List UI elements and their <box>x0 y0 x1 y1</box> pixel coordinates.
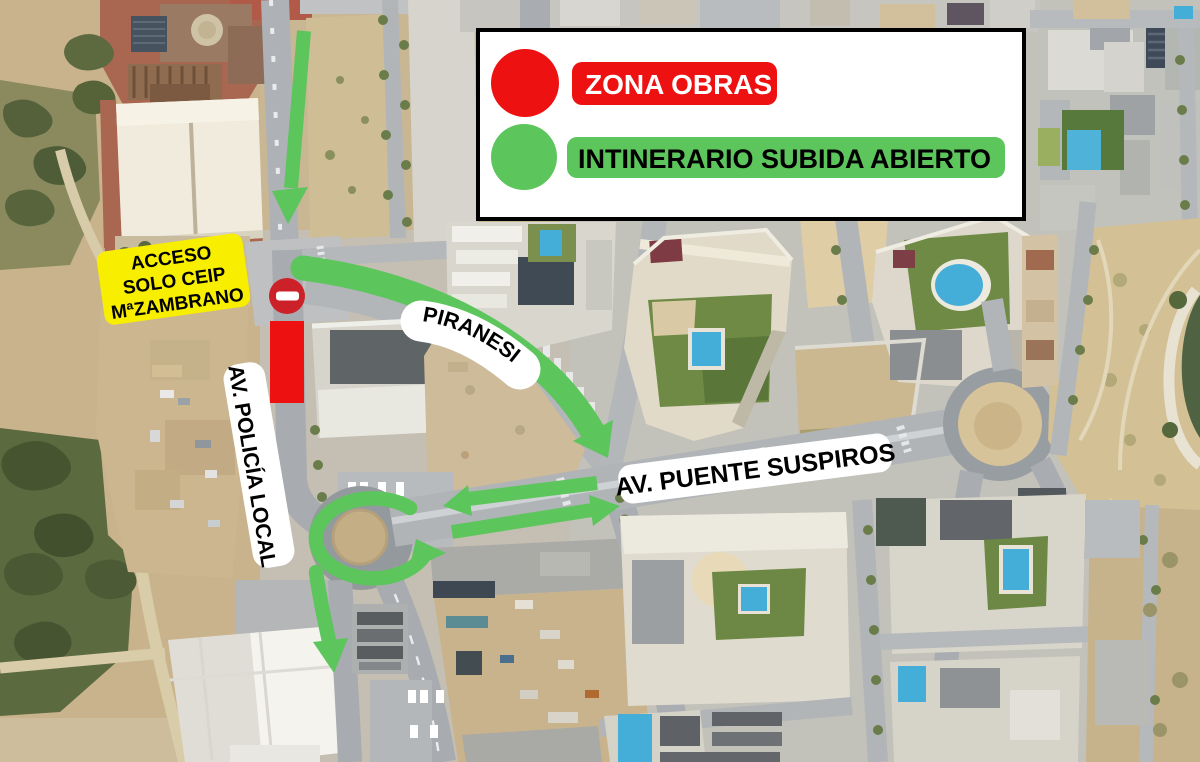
svg-text:ZONA OBRAS: ZONA OBRAS <box>585 69 772 100</box>
svg-text:INTINERARIO SUBIDA ABIERTO: INTINERARIO SUBIDA ABIERTO <box>578 144 991 174</box>
